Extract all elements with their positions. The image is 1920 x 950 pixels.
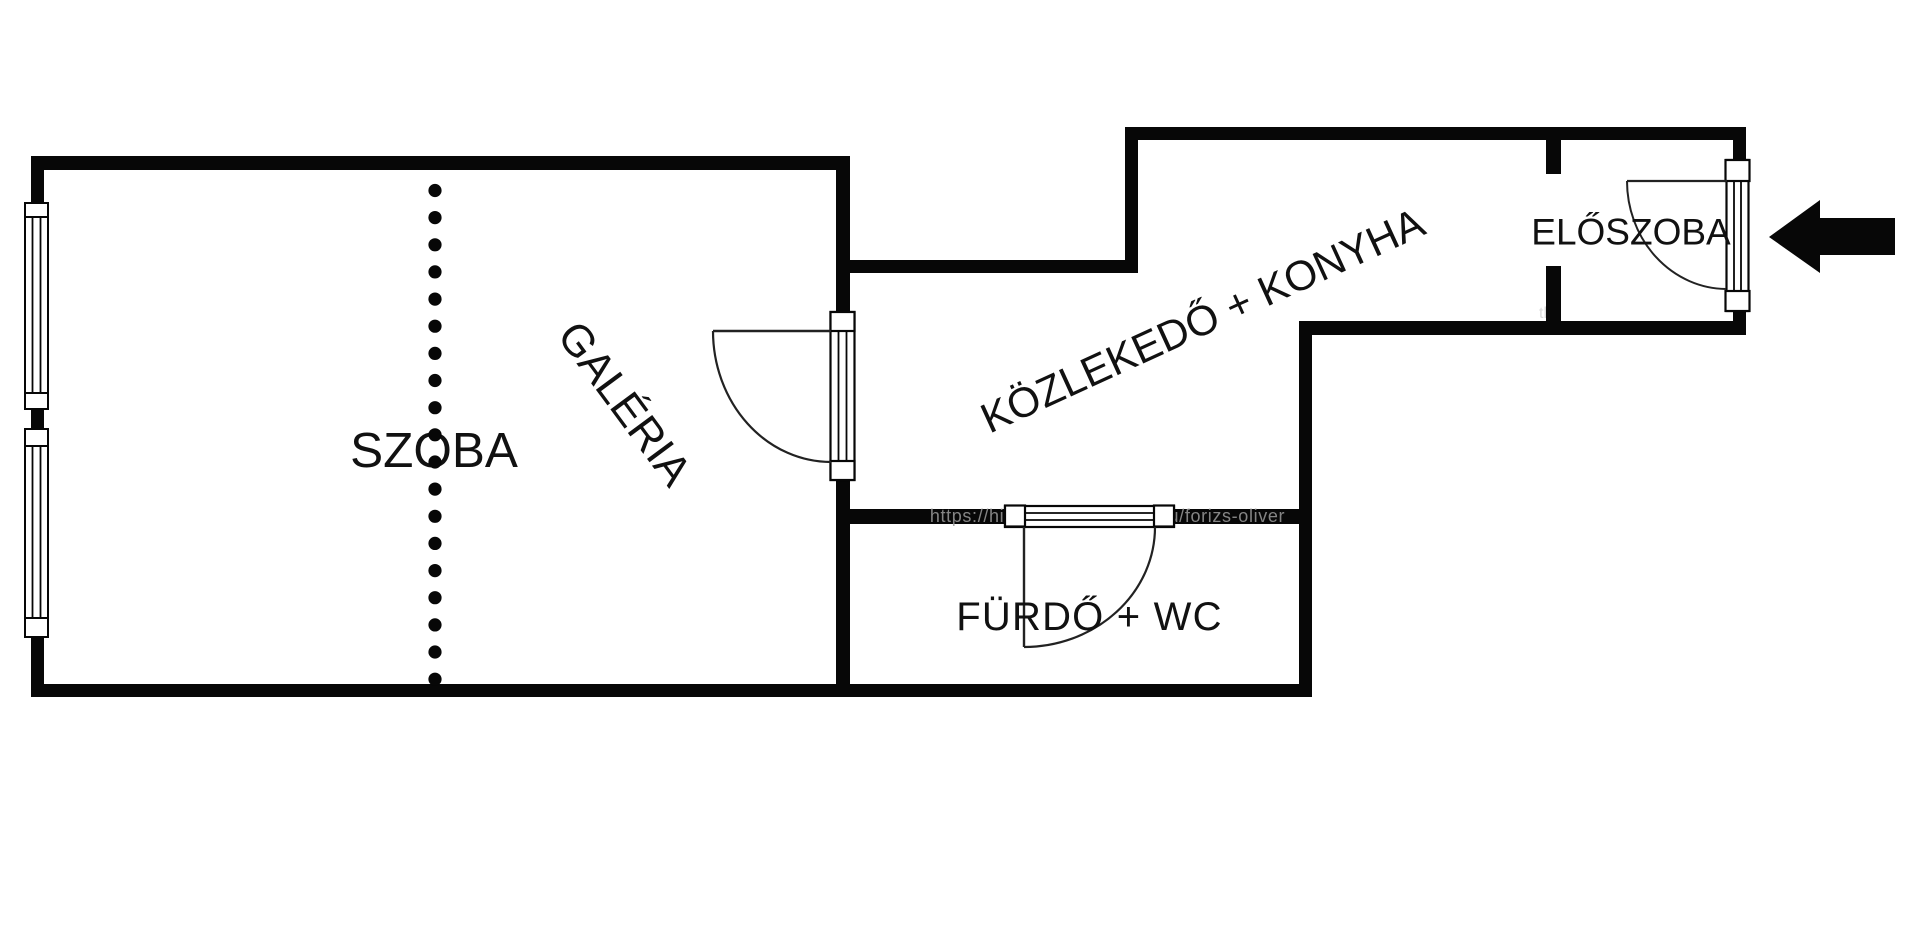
svg-text:KÖZLEKEDŐ + KONYHA: KÖZLEKEDŐ + KONYHA bbox=[974, 199, 1432, 442]
svg-text:FÜRDŐ + WC: FÜRDŐ + WC bbox=[956, 594, 1222, 639]
svg-text:tl: tl bbox=[1539, 305, 1547, 322]
svg-text:ELŐSZOBA: ELŐSZOBA bbox=[1531, 212, 1731, 253]
svg-text:GALÉRIA: GALÉRIA bbox=[548, 313, 701, 496]
